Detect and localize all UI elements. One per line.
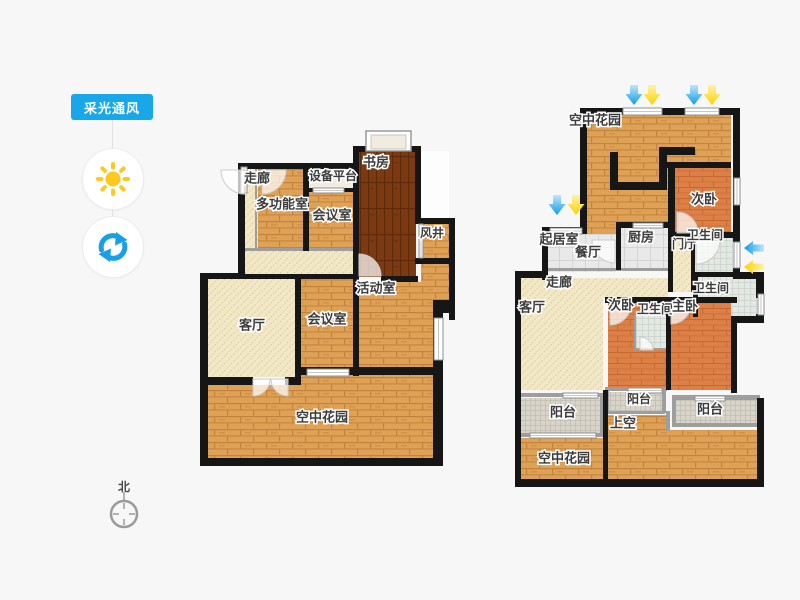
room-label: 卫生间 — [693, 280, 729, 295]
blue-down-arrow — [686, 85, 703, 105]
lighting-ventilation-button[interactable]: 采光通风 — [71, 94, 153, 120]
room-label: 厨房 — [628, 229, 654, 244]
compass: 北 — [95, 478, 153, 538]
blue-down-arrow — [549, 195, 566, 215]
room-label: 客厅 — [239, 317, 265, 332]
room-label: 卫生间 — [687, 227, 723, 242]
wall — [415, 218, 455, 224]
blue-down-arrow — [626, 85, 643, 105]
room-label: 多功能室 — [256, 196, 308, 211]
wall — [200, 273, 208, 466]
room-label: 设备平台 — [309, 168, 357, 183]
thin-wall — [545, 268, 670, 271]
wall — [603, 390, 608, 480]
sunlight-button[interactable] — [82, 148, 144, 210]
room-label: 阳台 — [697, 401, 723, 416]
wall — [610, 182, 660, 190]
room-label: 卫生间 — [637, 301, 673, 316]
thin-wall — [634, 315, 636, 351]
wall — [515, 479, 764, 487]
thin-wall — [607, 411, 665, 414]
room-label: 风井 — [420, 225, 444, 240]
room-open-above-ext — [666, 430, 757, 479]
refresh-icon — [93, 227, 133, 267]
room-hallway-3f — [521, 278, 668, 298]
compass-north-label: 北 — [95, 478, 153, 495]
sun-icon — [91, 157, 135, 201]
room-label: 走廊 — [546, 274, 572, 289]
ventilation-refresh-button[interactable] — [82, 216, 144, 278]
room-label: 书房 — [363, 154, 389, 169]
wall — [515, 393, 521, 487]
room-label: 会议室 — [307, 311, 346, 326]
yellow-down-arrow — [704, 85, 721, 105]
room-label: 主卧 — [672, 298, 698, 313]
room-label: 餐厅 — [574, 244, 601, 259]
thin-wall — [672, 395, 676, 426]
wall — [433, 300, 455, 313]
wall — [200, 458, 443, 466]
wall — [207, 274, 353, 279]
thin-wall — [245, 248, 355, 251]
thin-wall — [666, 411, 670, 431]
room-label: 上空 — [610, 415, 636, 430]
room-walkway-2f — [245, 250, 355, 276]
room-label: 走廊 — [244, 170, 270, 185]
yellow-left-arrow — [744, 260, 764, 274]
yellow-down-arrow — [644, 85, 661, 105]
thin-wall — [662, 387, 666, 413]
room-label: 活动室 — [356, 280, 395, 295]
wall — [515, 271, 521, 396]
room-void-space — [421, 151, 449, 218]
wall — [415, 152, 421, 224]
wall — [415, 258, 449, 264]
room-label: 次卧 — [608, 297, 634, 312]
room-label: 空中花园 — [538, 450, 590, 465]
wall — [207, 377, 253, 385]
wall — [733, 316, 761, 323]
wall — [295, 279, 301, 378]
room-label: 会议室 — [312, 207, 351, 222]
wall — [668, 222, 673, 292]
room-label: 空中花园 — [296, 409, 348, 424]
door-swing — [221, 170, 245, 194]
wall — [353, 152, 359, 376]
wall — [695, 272, 757, 277]
room-label: 次卧 — [691, 191, 717, 206]
room-label: 阳台 — [550, 404, 576, 419]
wall — [238, 163, 358, 169]
room-label: 起居室 — [538, 231, 578, 246]
wall — [666, 162, 731, 168]
room-label: 客厅 — [519, 299, 545, 314]
ac-platform-box — [366, 131, 411, 151]
wall — [733, 108, 740, 242]
room-label: 空中花园 — [569, 112, 621, 127]
wall — [616, 228, 621, 270]
wall — [731, 316, 737, 393]
wall — [757, 398, 764, 487]
blue-left-arrow — [744, 241, 764, 255]
wall — [659, 147, 667, 190]
thin-wall — [672, 423, 760, 427]
room-label: 阳台 — [627, 391, 651, 406]
